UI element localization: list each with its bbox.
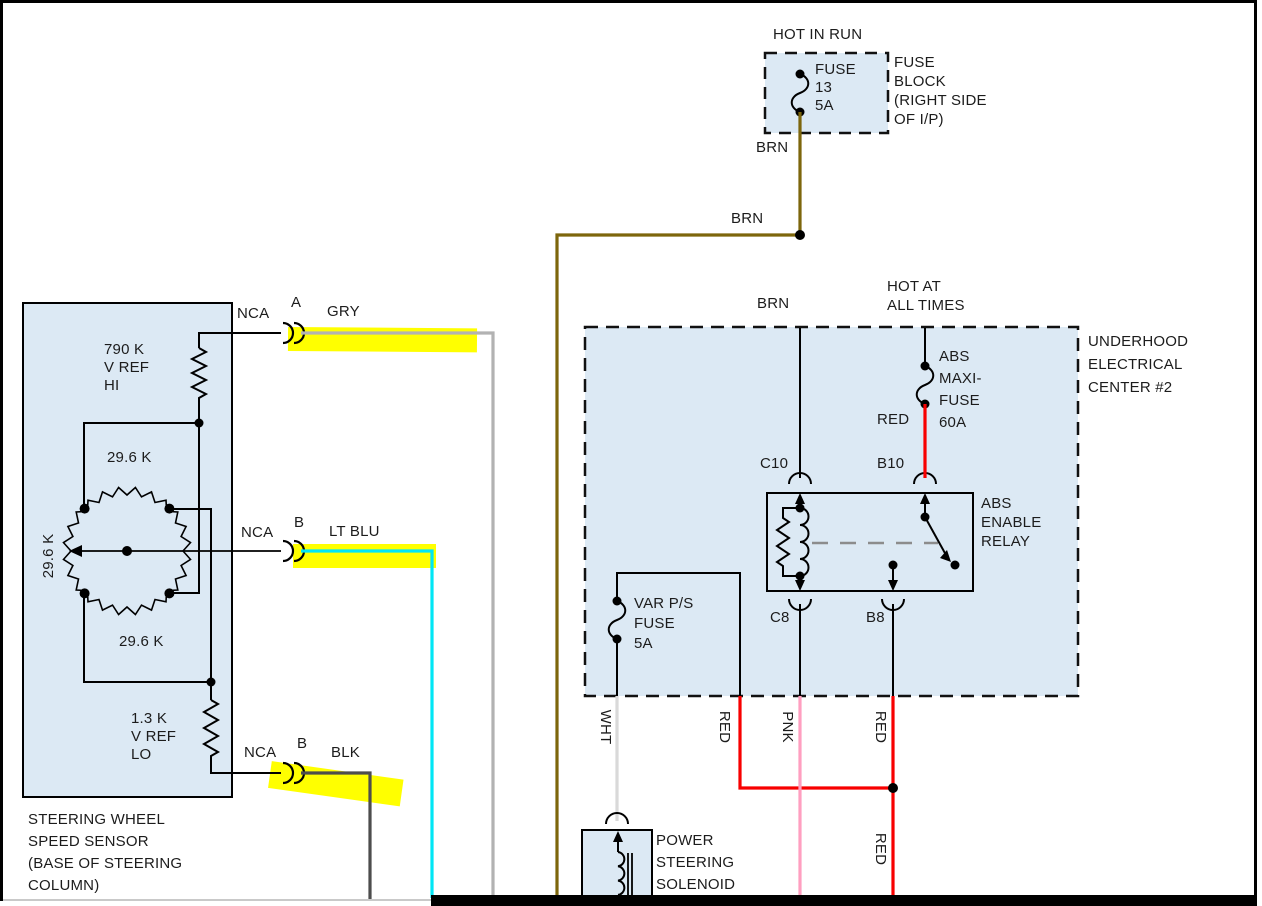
junction-brn [795,230,805,240]
brn-wire-label-3: BRN [757,295,789,313]
red-wire-label-2: RED [871,711,889,743]
abs-maxi-fuse-label: ABS MAXI- FUSE 60A [939,346,982,434]
blk-wire-label: BLK [331,744,360,762]
underhood-center-name: UNDERHOOD ELECTRICAL CENTER #2 [1088,330,1188,399]
pin-a-label: A [291,294,301,312]
fuse-13-label: FUSE 13 5A [815,61,856,115]
vref-hi-label: 790 K V REF HI [104,341,149,395]
highlight-ltblu [293,544,436,568]
ltblu-wire-label: LT BLU [329,523,380,541]
red-wire-label-b10: RED [877,411,909,429]
nca-label-b2: NCA [244,744,276,762]
terminal-c10-label: C10 [760,455,788,473]
red-wire-label-3: RED [871,833,889,865]
diagram-canvas [0,0,1262,906]
pin-b1-label: B [294,514,304,532]
ring-value-left-label: 29.6 K [40,534,58,579]
hot-in-run-label: HOT IN RUN [773,26,862,44]
abs-enable-relay-label: ABS ENABLE RELAY [981,494,1041,551]
brn-wire-label-1: BRN [756,139,788,157]
nca-label-a: NCA [237,305,269,323]
terminal-c8-label: C8 [770,609,790,627]
border-left [0,0,3,901]
highlight-blk [268,761,403,806]
highlight-gry [288,327,477,352]
border-right [1254,0,1257,906]
wht-wire-label: WHT [596,710,614,745]
var-ps-fuse-label: VAR P/S FUSE 5A [634,594,693,654]
gry-wire-label: GRY [327,303,360,321]
terminal-b8-label: B8 [866,609,885,627]
fuse-block-name: FUSE BLOCK (RIGHT SIDE OF I/P) [894,53,987,129]
component-boxes [23,53,1078,906]
hot-at-all-times-label: HOT AT ALL TIMES [887,277,965,315]
terminal-b10-label: B10 [877,455,904,473]
border-bottom-bar [431,895,1254,906]
ring-value-bottom-label: 29.6 K [119,633,164,651]
brn-wire-label-2: BRN [731,210,763,228]
pin-b2-label: B [297,735,307,753]
border-bottom-thin [3,899,431,901]
ring-value-top-label: 29.6 K [107,449,152,467]
wire-ltblu [301,551,432,898]
border-top [0,0,1257,3]
nca-label-b1: NCA [241,524,273,542]
wiring-diagram: HOT IN RUN FUSE 13 5A FUSE BLOCK (RIGHT … [0,0,1262,906]
junction-red [888,783,898,793]
pnk-wire-label: PNK [778,711,796,742]
sensor-name: STEERING WHEEL SPEED SENSOR (BASE OF STE… [28,809,182,897]
red-wire-label-1: RED [715,711,733,743]
wire-gry [301,333,493,898]
vref-lo-label: 1.3 K V REF LO [131,710,176,764]
